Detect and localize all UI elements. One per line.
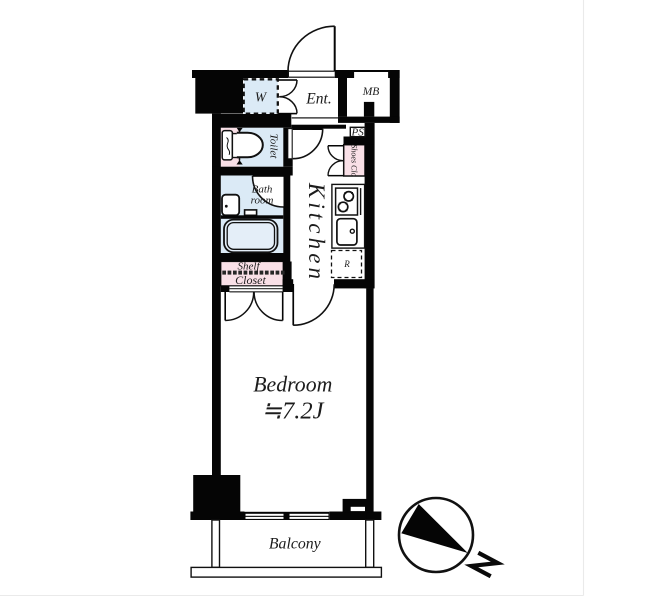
svg-text:Bedroom: Bedroom bbox=[253, 373, 332, 397]
svg-text:Shelf: Shelf bbox=[238, 261, 262, 273]
svg-text:Closet: Closet bbox=[235, 273, 266, 287]
svg-text:Toilet: Toilet bbox=[267, 134, 279, 160]
svg-text:Ent.: Ent. bbox=[305, 91, 331, 108]
svg-text:Balcony: Balcony bbox=[269, 536, 322, 553]
svg-text:≒7.2J: ≒7.2J bbox=[261, 398, 324, 425]
svg-text:MB: MB bbox=[362, 86, 380, 98]
svg-text:PS: PS bbox=[350, 126, 364, 138]
svg-text:room: room bbox=[251, 195, 274, 207]
svg-text:Shoes Clo: Shoes Clo bbox=[350, 144, 359, 176]
svg-text:Kitchen: Kitchen bbox=[304, 182, 329, 283]
svg-text:R: R bbox=[343, 259, 350, 269]
svg-text:W: W bbox=[255, 90, 268, 105]
